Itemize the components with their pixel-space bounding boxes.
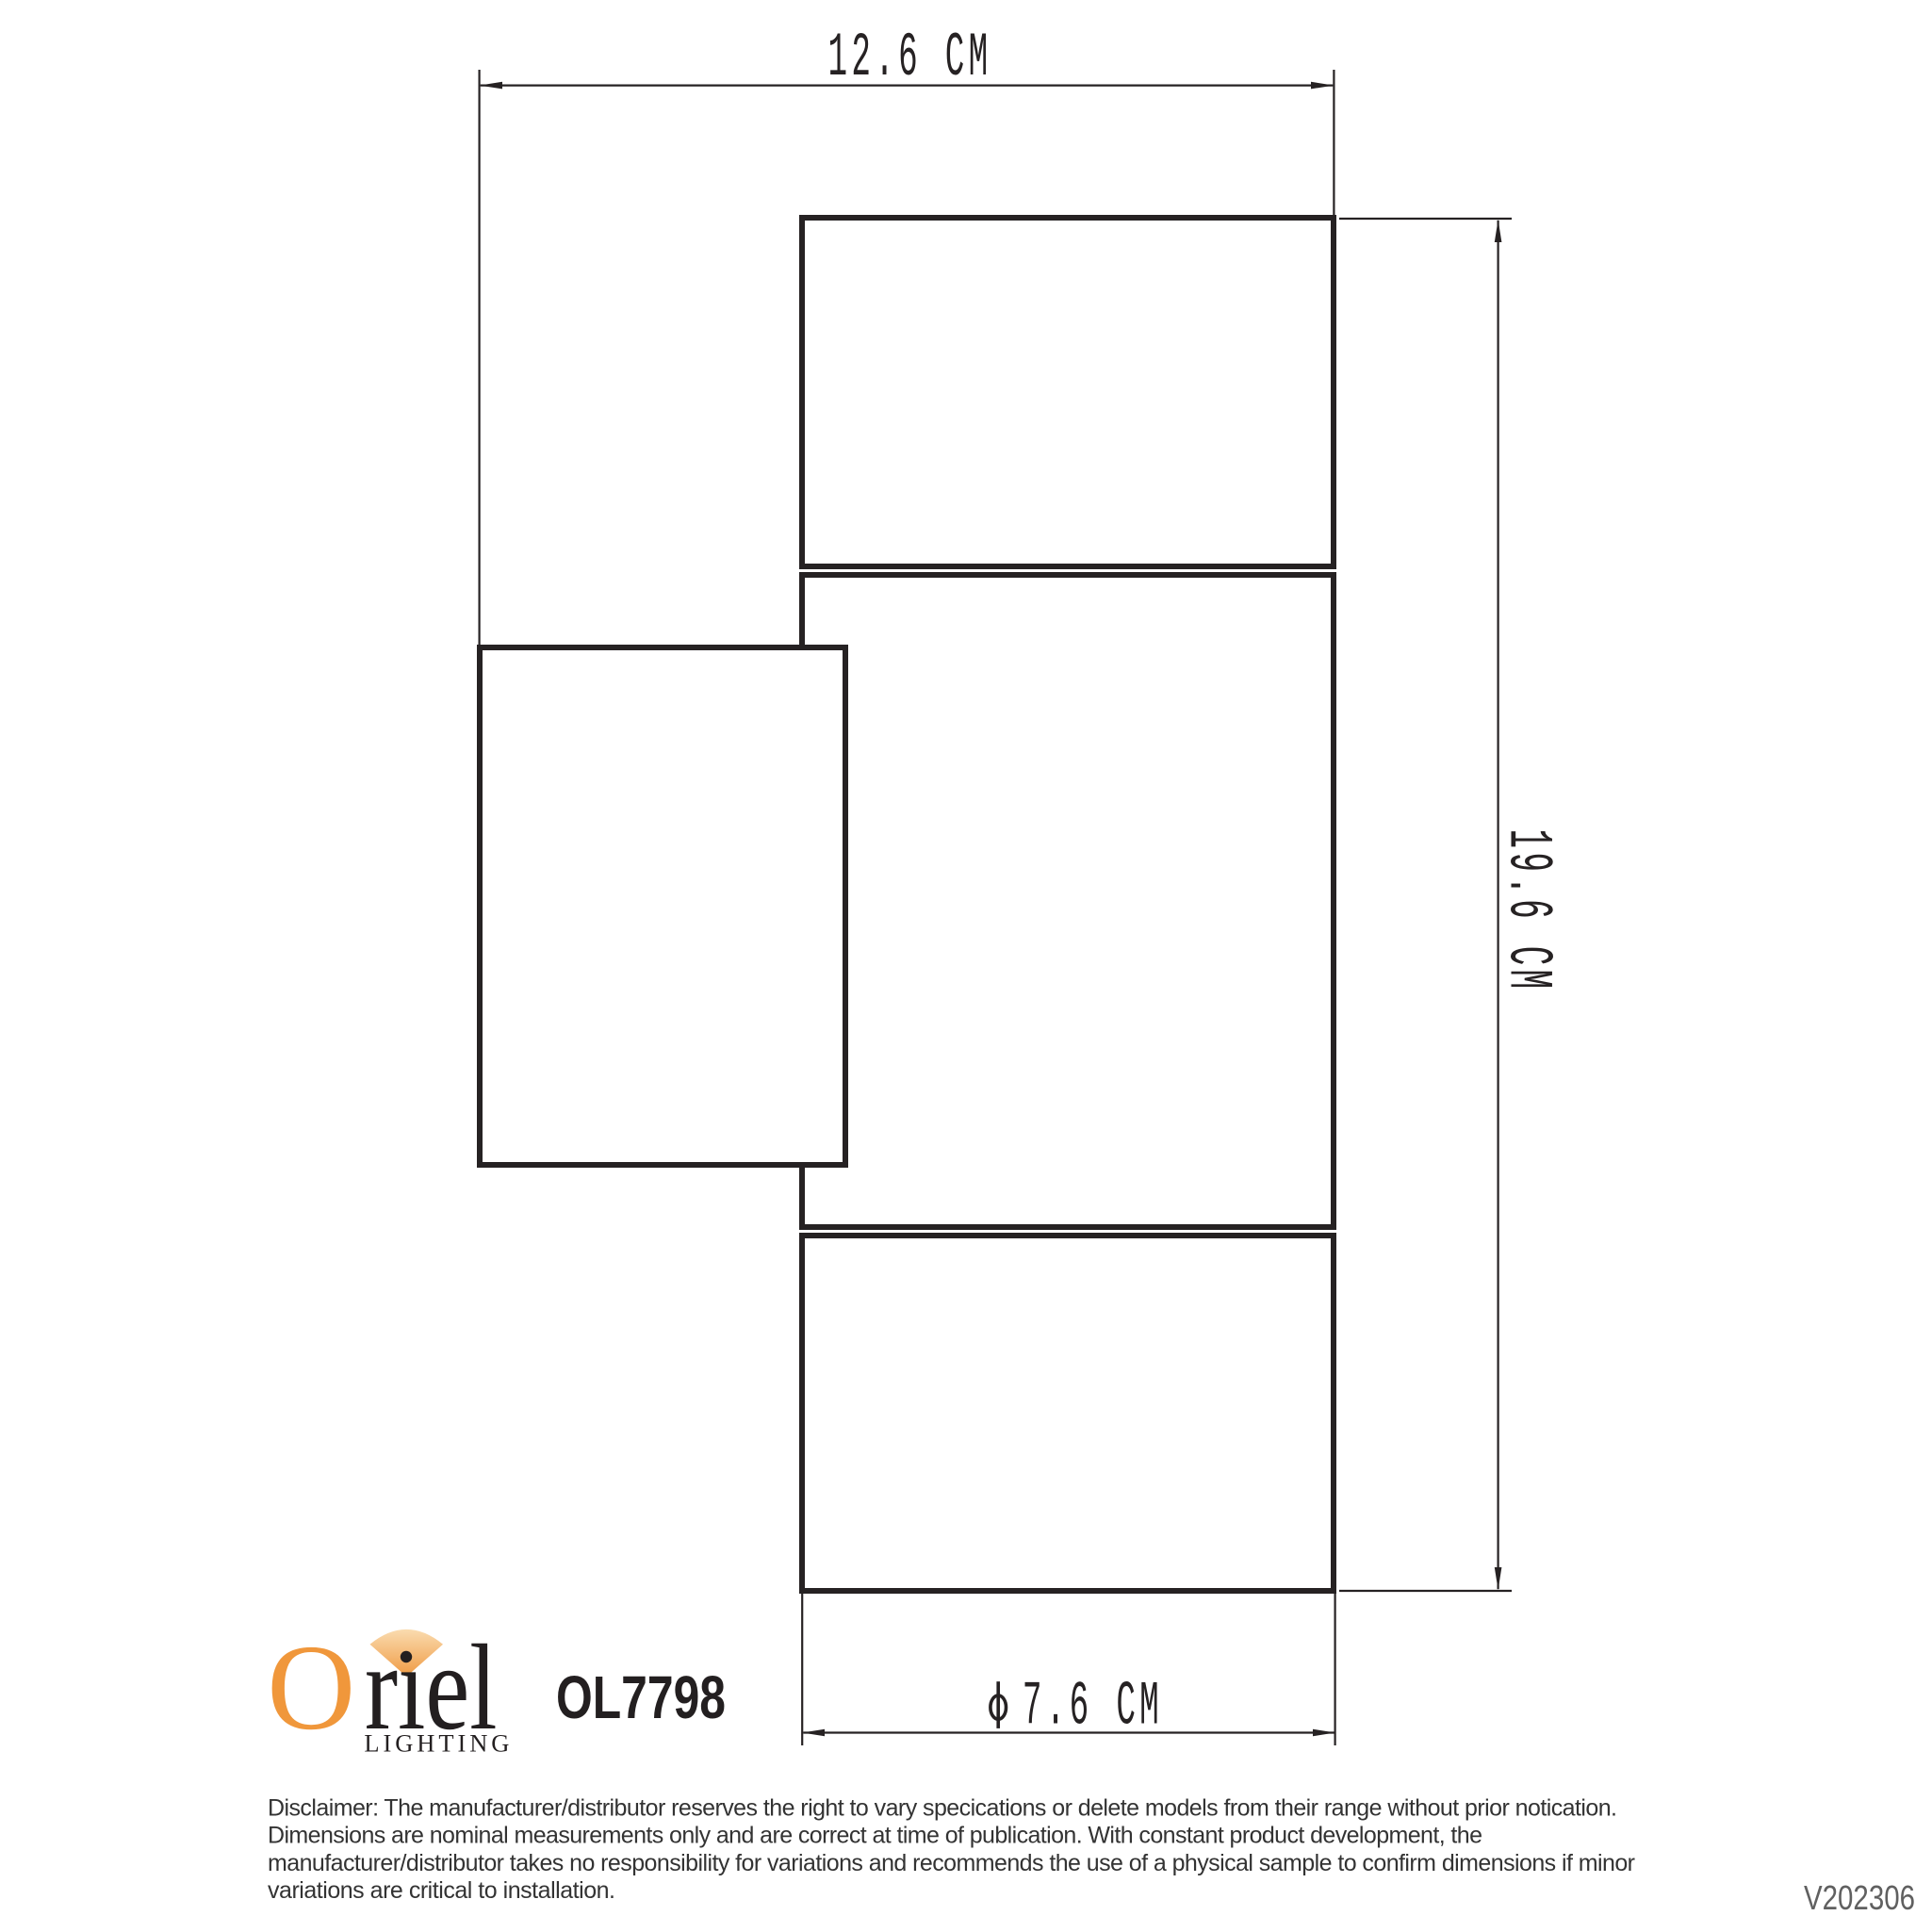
svg-text:12.6 CM: 12.6 CM (828, 23, 992, 93)
svg-text:OL7798: OL7798 (556, 1663, 726, 1731)
svg-text:7.6 CM: 7.6 CM (1023, 1671, 1163, 1742)
svg-text:variations are critical to ins: variations are critical to installation. (268, 1877, 615, 1904)
svg-text:V202306: V202306 (1804, 1878, 1915, 1917)
svg-text:manufacturer/distributor takes: manufacturer/distributor takes no respon… (268, 1850, 1635, 1876)
svg-text:O: O (267, 1620, 355, 1756)
svg-text:Disclaimer: The manufacturer/d: Disclaimer: The manufacturer/distributor… (268, 1795, 1617, 1822)
svg-text:19.6 CM: 19.6 CM (1492, 829, 1563, 993)
svg-text:Dimensions are nominal measure: Dimensions are nominal measurements only… (268, 1823, 1482, 1849)
